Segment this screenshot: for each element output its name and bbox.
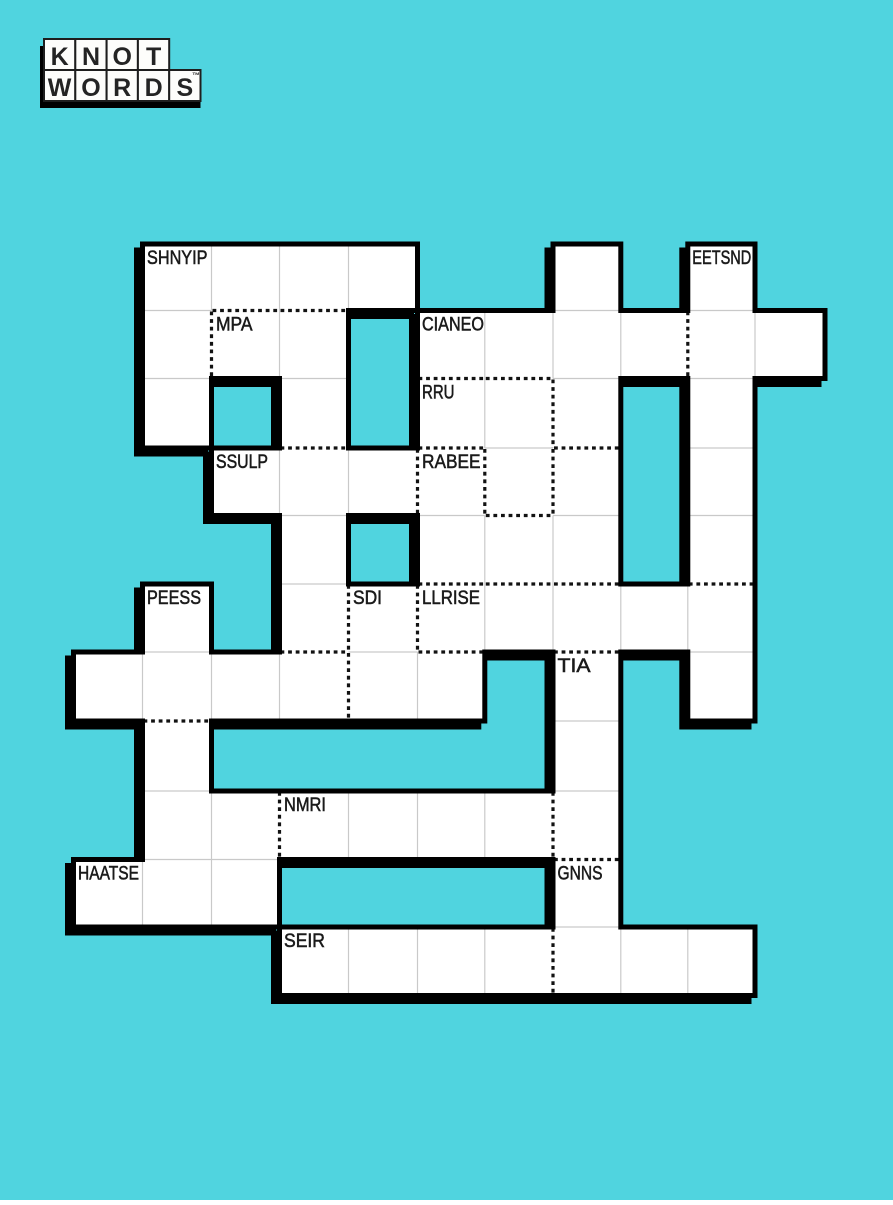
- svg-text:SDI: SDI: [353, 587, 382, 609]
- svg-text:W: W: [48, 74, 72, 102]
- svg-text:SSULP: SSULP: [216, 451, 268, 473]
- svg-text:RABEE: RABEE: [422, 451, 481, 473]
- svg-text:NMRI: NMRI: [284, 794, 326, 816]
- svg-text:MPA: MPA: [216, 314, 253, 336]
- svg-text:O: O: [81, 74, 100, 102]
- svg-text:RRU: RRU: [422, 382, 455, 404]
- svg-text:™: ™: [192, 71, 200, 80]
- svg-text:GNNS: GNNS: [558, 863, 603, 885]
- svg-text:CIANEO: CIANEO: [422, 314, 484, 336]
- svg-text:SHNYIP: SHNYIP: [147, 247, 208, 269]
- svg-text:SEIR: SEIR: [284, 930, 325, 952]
- svg-text:N: N: [82, 43, 100, 71]
- svg-text:R: R: [113, 74, 131, 102]
- svg-text:TIA: TIA: [558, 655, 591, 677]
- svg-text:O: O: [112, 43, 131, 71]
- svg-text:PEESS: PEESS: [147, 587, 201, 609]
- svg-text:D: D: [145, 74, 163, 102]
- svg-text:S: S: [176, 74, 193, 102]
- svg-text:T: T: [146, 43, 161, 71]
- svg-text:HAATSE: HAATSE: [78, 863, 139, 885]
- svg-text:K: K: [51, 43, 69, 71]
- svg-text:EETSND: EETSND: [692, 247, 751, 269]
- svg-text:LLRISE: LLRISE: [422, 587, 480, 609]
